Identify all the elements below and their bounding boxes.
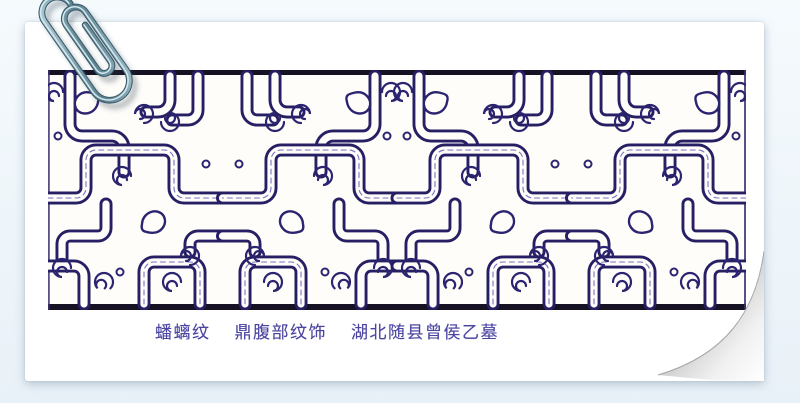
caption-object-part: 鼎腹部纹饰	[235, 323, 328, 343]
caption-provenance: 湖北随县曾侯乙墓	[351, 323, 499, 343]
caption-pattern-name: 蟠螭纹	[155, 323, 211, 343]
caption: 蟠螭纹鼎腹部纹饰湖北随县曾侯乙墓	[155, 318, 499, 343]
paperclip-icon	[14, 0, 164, 138]
page-curl-graphic	[652, 251, 764, 381]
